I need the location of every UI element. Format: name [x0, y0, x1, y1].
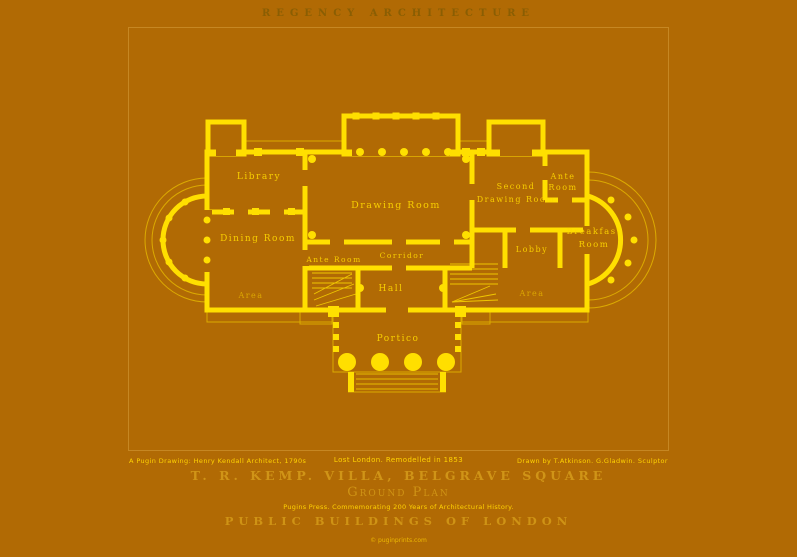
- room-label-corridor: Corridor: [380, 251, 425, 260]
- room-label-hall: Hall: [379, 284, 404, 294]
- room-label-ante-right-1: Ante: [550, 172, 576, 181]
- room-label-ante-center: Ante Room: [305, 255, 361, 264]
- poster-title: T. R. KEMP. VILLA, BELGRAVE SQUARE: [0, 468, 797, 483]
- room-label-library: Library: [237, 172, 281, 182]
- poster-page: { "poster": { "header_title": "REGENCY A…: [0, 0, 797, 557]
- room-label-breakfast-2: Room: [579, 240, 610, 250]
- series-title: PUBLIC BUILDINGS OF LONDON: [0, 514, 797, 528]
- room-label-drawing: Drawing Room: [351, 200, 441, 211]
- room-label-dining: Dining Room: [220, 234, 296, 244]
- portico-structure: [328, 306, 466, 392]
- room-label-portico: Portico: [377, 334, 420, 344]
- caption-lost-london: Lost London. Remodelled in 1853: [0, 456, 797, 464]
- series-note: Pugins Press. Commemorating 200 Years of…: [0, 503, 797, 511]
- room-label-ante-right-2: Room: [548, 183, 577, 192]
- room-label-area-left: Area: [237, 291, 263, 300]
- room-label-second-drawing-1: Second: [497, 182, 536, 191]
- room-label-second-drawing-2: Drawing Room: [477, 195, 555, 204]
- ground-plan-label: Ground Plan: [0, 485, 797, 500]
- room-label-area-right: Area: [518, 289, 544, 298]
- plan-walls: [163, 116, 621, 310]
- room-label-lobby: Lobby: [516, 245, 548, 254]
- credit-engraver: Drawn by T.Atkinson. G.Gladwin. Sculptor: [517, 457, 668, 465]
- room-label-breakfast-1: Breakfast: [566, 227, 621, 237]
- left-bow-wall: [163, 196, 207, 284]
- copyright-text: © puginprints.com: [0, 537, 797, 544]
- portico-steps: [356, 374, 438, 389]
